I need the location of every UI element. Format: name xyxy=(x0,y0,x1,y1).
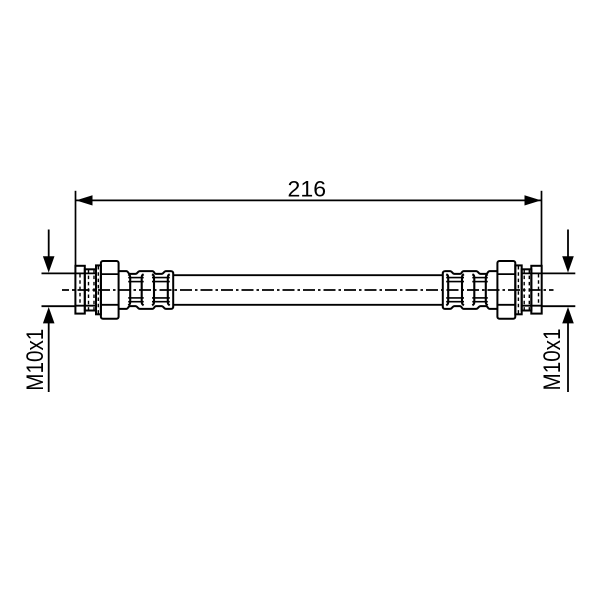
svg-text:M10x1: M10x1 xyxy=(22,329,49,391)
svg-text:216: 216 xyxy=(288,177,327,202)
svg-text:M10x1: M10x1 xyxy=(539,329,566,391)
